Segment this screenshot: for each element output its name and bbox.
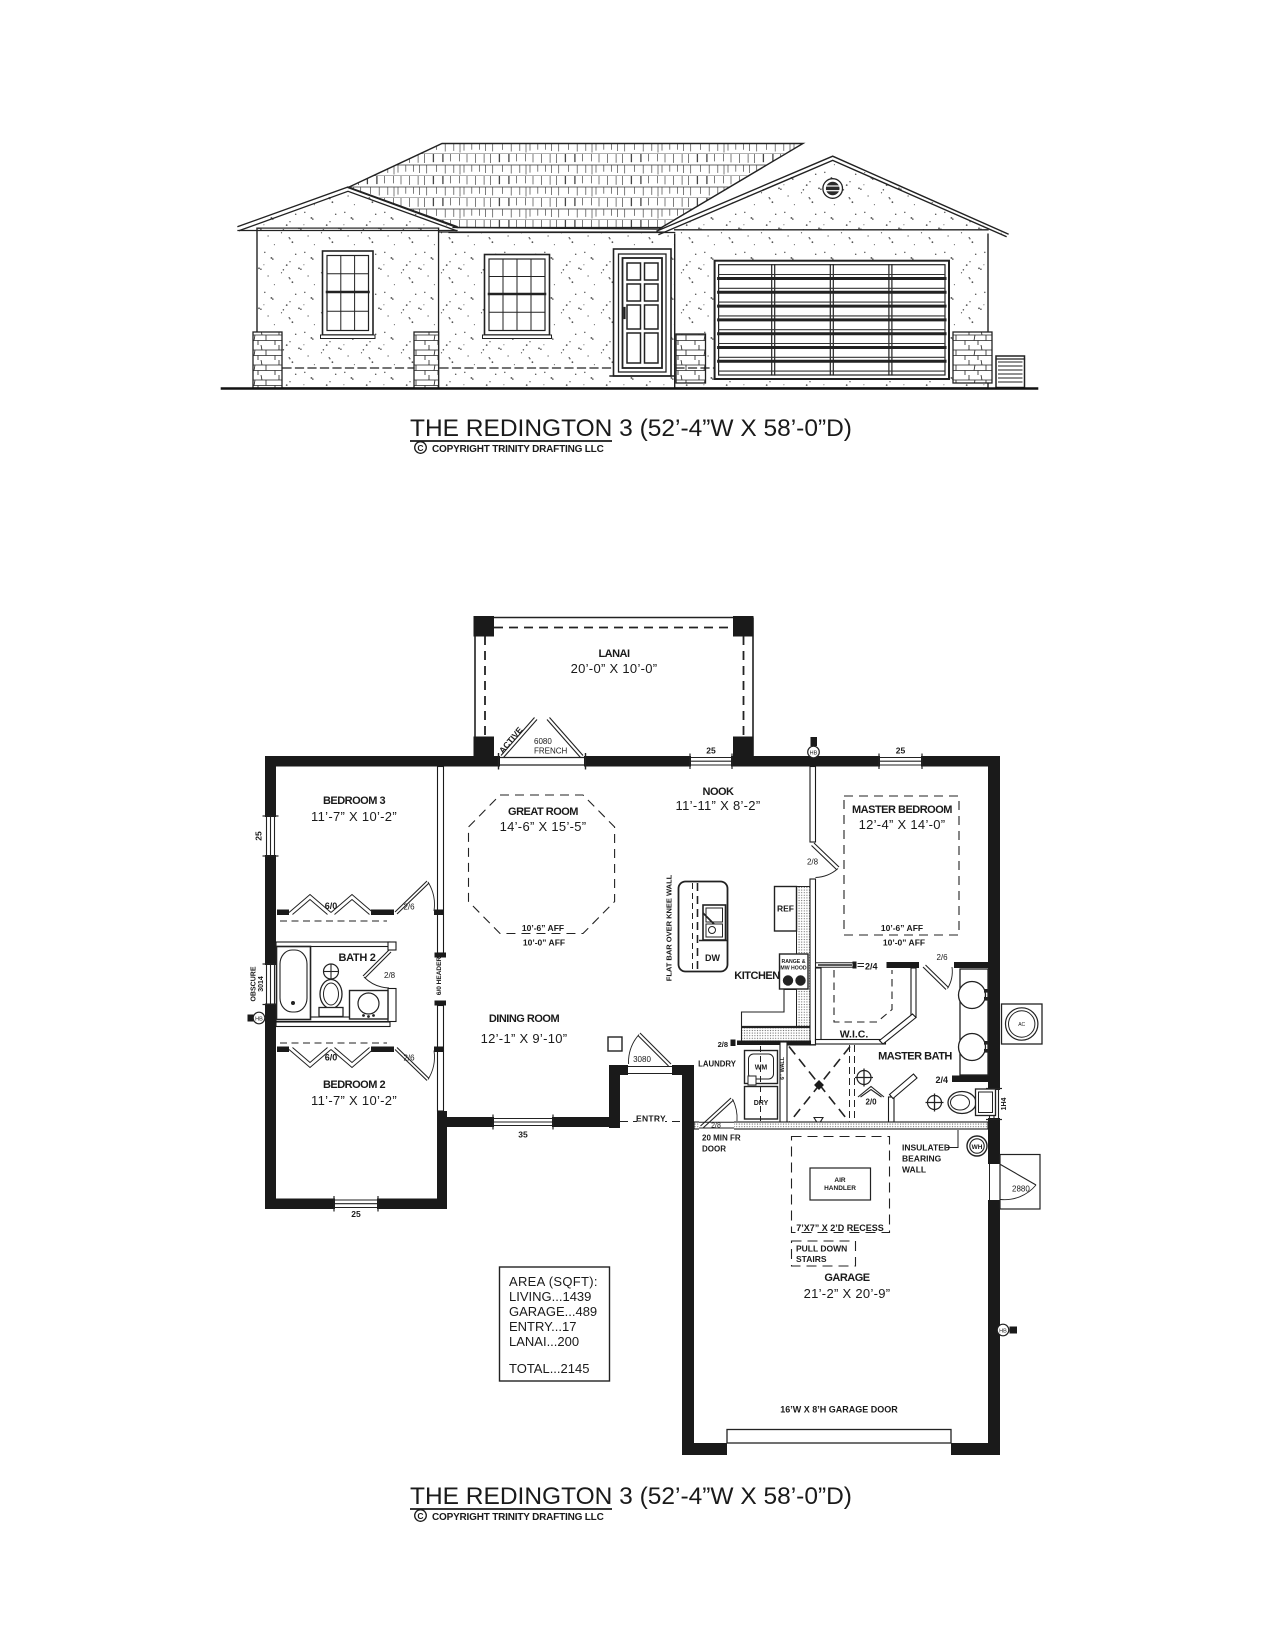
svg-text:GARAGE...489: GARAGE...489 — [509, 1304, 597, 1319]
svg-text:WM: WM — [755, 1065, 768, 1072]
svg-text:11’-11” X 8’-2”: 11’-11” X 8’-2” — [676, 798, 761, 813]
svg-text:35: 35 — [518, 1130, 528, 1140]
svg-text:2/4: 2/4 — [865, 962, 878, 972]
svg-text:STAIRS: STAIRS — [796, 1254, 827, 1264]
svg-text:ENTRY...17: ENTRY...17 — [509, 1319, 576, 1334]
svg-text:MASTER BATH: MASTER BATH — [878, 1051, 952, 1063]
svg-text:LANAI...200: LANAI...200 — [509, 1334, 579, 1349]
svg-text:2/0: 2/0 — [865, 1098, 877, 1107]
svg-text:REF: REF — [777, 904, 794, 914]
svg-text:FLAT BAR OVER KNEE WALL: FLAT BAR OVER KNEE WALL — [665, 874, 674, 981]
svg-text:W.I.C.: W.I.C. — [840, 1029, 869, 1041]
svg-text:BEDROOM 3: BEDROOM 3 — [323, 795, 386, 807]
svg-text:2/8: 2/8 — [807, 858, 819, 867]
svg-text:20 MIN FR: 20 MIN FR — [702, 1134, 741, 1143]
svg-text:LAUNDRY: LAUNDRY — [698, 1060, 737, 1069]
svg-text:LIVING...1439: LIVING...1439 — [509, 1289, 591, 1304]
svg-text:HB: HB — [255, 1017, 263, 1023]
svg-text:10’-0” AFF: 10’-0” AFF — [883, 938, 925, 948]
svg-text:MW HOOD: MW HOOD — [780, 966, 806, 972]
svg-text:6” WALL: 6” WALL — [780, 1056, 786, 1080]
svg-text:KITCHEN: KITCHEN — [734, 970, 780, 982]
svg-text:BEDROOM 2: BEDROOM 2 — [323, 1079, 386, 1091]
svg-text:11’-7” X 10’-2”: 11’-7” X 10’-2” — [311, 809, 397, 824]
svg-text:DOOR: DOOR — [702, 1145, 726, 1154]
svg-text:FRENCH: FRENCH — [534, 747, 568, 756]
svg-text:10’-6” AFF: 10’-6” AFF — [881, 923, 923, 933]
svg-text:25: 25 — [706, 746, 716, 756]
svg-text:GARAGE: GARAGE — [824, 1272, 869, 1284]
svg-text:3080: 3080 — [633, 1055, 651, 1064]
svg-text:DW: DW — [705, 953, 720, 963]
svg-text:6/0 HEADER: 6/0 HEADER — [436, 957, 443, 996]
svg-text:INSULATED: INSULATED — [902, 1143, 950, 1153]
svg-text:DRY: DRY — [754, 1100, 769, 1107]
svg-text:2/6: 2/6 — [403, 903, 415, 912]
svg-text:20’-0” X 10’-0”: 20’-0” X 10’-0” — [571, 661, 658, 676]
svg-text:6/0: 6/0 — [325, 1053, 338, 1063]
svg-text:2/4: 2/4 — [935, 1075, 948, 1085]
svg-text:10’-6” AFF: 10’-6” AFF — [522, 923, 564, 933]
svg-text:OBSCURE: OBSCURE — [251, 966, 258, 1001]
svg-text:2/8: 2/8 — [384, 971, 396, 980]
svg-text:COPYRIGHT TRINITY DRAFTING LLC: COPYRIGHT TRINITY DRAFTING LLC — [432, 444, 604, 455]
svg-text:NOOK: NOOK — [703, 786, 735, 798]
svg-text:12’-1” X 9’-10”: 12’-1” X 9’-10” — [481, 1031, 568, 1046]
svg-text:GREAT ROOM: GREAT ROOM — [508, 806, 578, 818]
svg-text:BATH 2: BATH 2 — [338, 952, 375, 964]
svg-text:2/6: 2/6 — [403, 1054, 415, 1063]
svg-text:11’-7” X 10’-2”: 11’-7” X 10’-2” — [311, 1093, 397, 1108]
svg-text:2880: 2880 — [1012, 1185, 1030, 1194]
svg-text:AIR: AIR — [834, 1177, 846, 1184]
svg-text:AC: AC — [1018, 1022, 1025, 1028]
svg-text:MASTER BEDROOM: MASTER BEDROOM — [852, 804, 952, 816]
svg-text:2/6: 2/6 — [936, 953, 948, 962]
svg-text:6/0: 6/0 — [325, 901, 338, 911]
svg-text:C: C — [417, 443, 423, 453]
svg-text:LANAI: LANAI — [598, 648, 630, 660]
svg-text:HB: HB — [999, 1329, 1007, 1335]
svg-text:25: 25 — [351, 1209, 361, 1219]
svg-text:25: 25 — [254, 831, 264, 841]
svg-text:HB: HB — [810, 751, 818, 757]
svg-text:THE REDINGTON 3 (52’-4”W X 58’: THE REDINGTON 3 (52’-4”W X 58’-0”D) — [410, 415, 852, 442]
svg-text:1H4: 1H4 — [1001, 1097, 1008, 1110]
svg-text:C: C — [417, 1511, 423, 1521]
svg-text:3014: 3014 — [258, 976, 265, 992]
svg-text:2/8: 2/8 — [711, 1123, 721, 1130]
svg-text:RANGE &: RANGE & — [782, 959, 806, 965]
svg-text:DINING ROOM: DINING ROOM — [489, 1013, 560, 1025]
svg-text:14’-6” X 15’-5”: 14’-6” X 15’-5” — [500, 819, 587, 834]
svg-text:COPYRIGHT TRINITY DRAFTING LLC: COPYRIGHT TRINITY DRAFTING LLC — [432, 1512, 604, 1523]
svg-text:25: 25 — [896, 746, 906, 756]
svg-text:ENTRY: ENTRY — [636, 1114, 666, 1124]
svg-text:21’-2” X 20’-9”: 21’-2” X 20’-9” — [804, 1286, 891, 1301]
svg-text:6080: 6080 — [534, 737, 552, 746]
svg-text:AREA (SQFT):: AREA (SQFT): — [509, 1274, 598, 1289]
svg-text:7’X7” X 2’D RECESS: 7’X7” X 2’D RECESS — [796, 1223, 884, 1233]
svg-text:2/8: 2/8 — [718, 1040, 728, 1049]
svg-text:12’-4” X 14’-0”: 12’-4” X 14’-0” — [859, 817, 946, 832]
svg-text:TOTAL...2145: TOTAL...2145 — [509, 1361, 589, 1376]
svg-text:16’W X 8’H GARAGE DOOR: 16’W X 8’H GARAGE DOOR — [780, 1405, 898, 1415]
svg-text:WH: WH — [972, 1144, 983, 1151]
svg-text:PULL DOWN: PULL DOWN — [796, 1244, 847, 1254]
svg-text:HANDLER: HANDLER — [824, 1185, 856, 1192]
svg-text:THE REDINGTON 3 (52’-4”W X 58’: THE REDINGTON 3 (52’-4”W X 58’-0”D) — [410, 1483, 852, 1510]
svg-text:BEARING: BEARING — [902, 1154, 942, 1164]
svg-text:WALL: WALL — [902, 1165, 926, 1175]
svg-text:10’-0” AFF: 10’-0” AFF — [523, 938, 565, 948]
